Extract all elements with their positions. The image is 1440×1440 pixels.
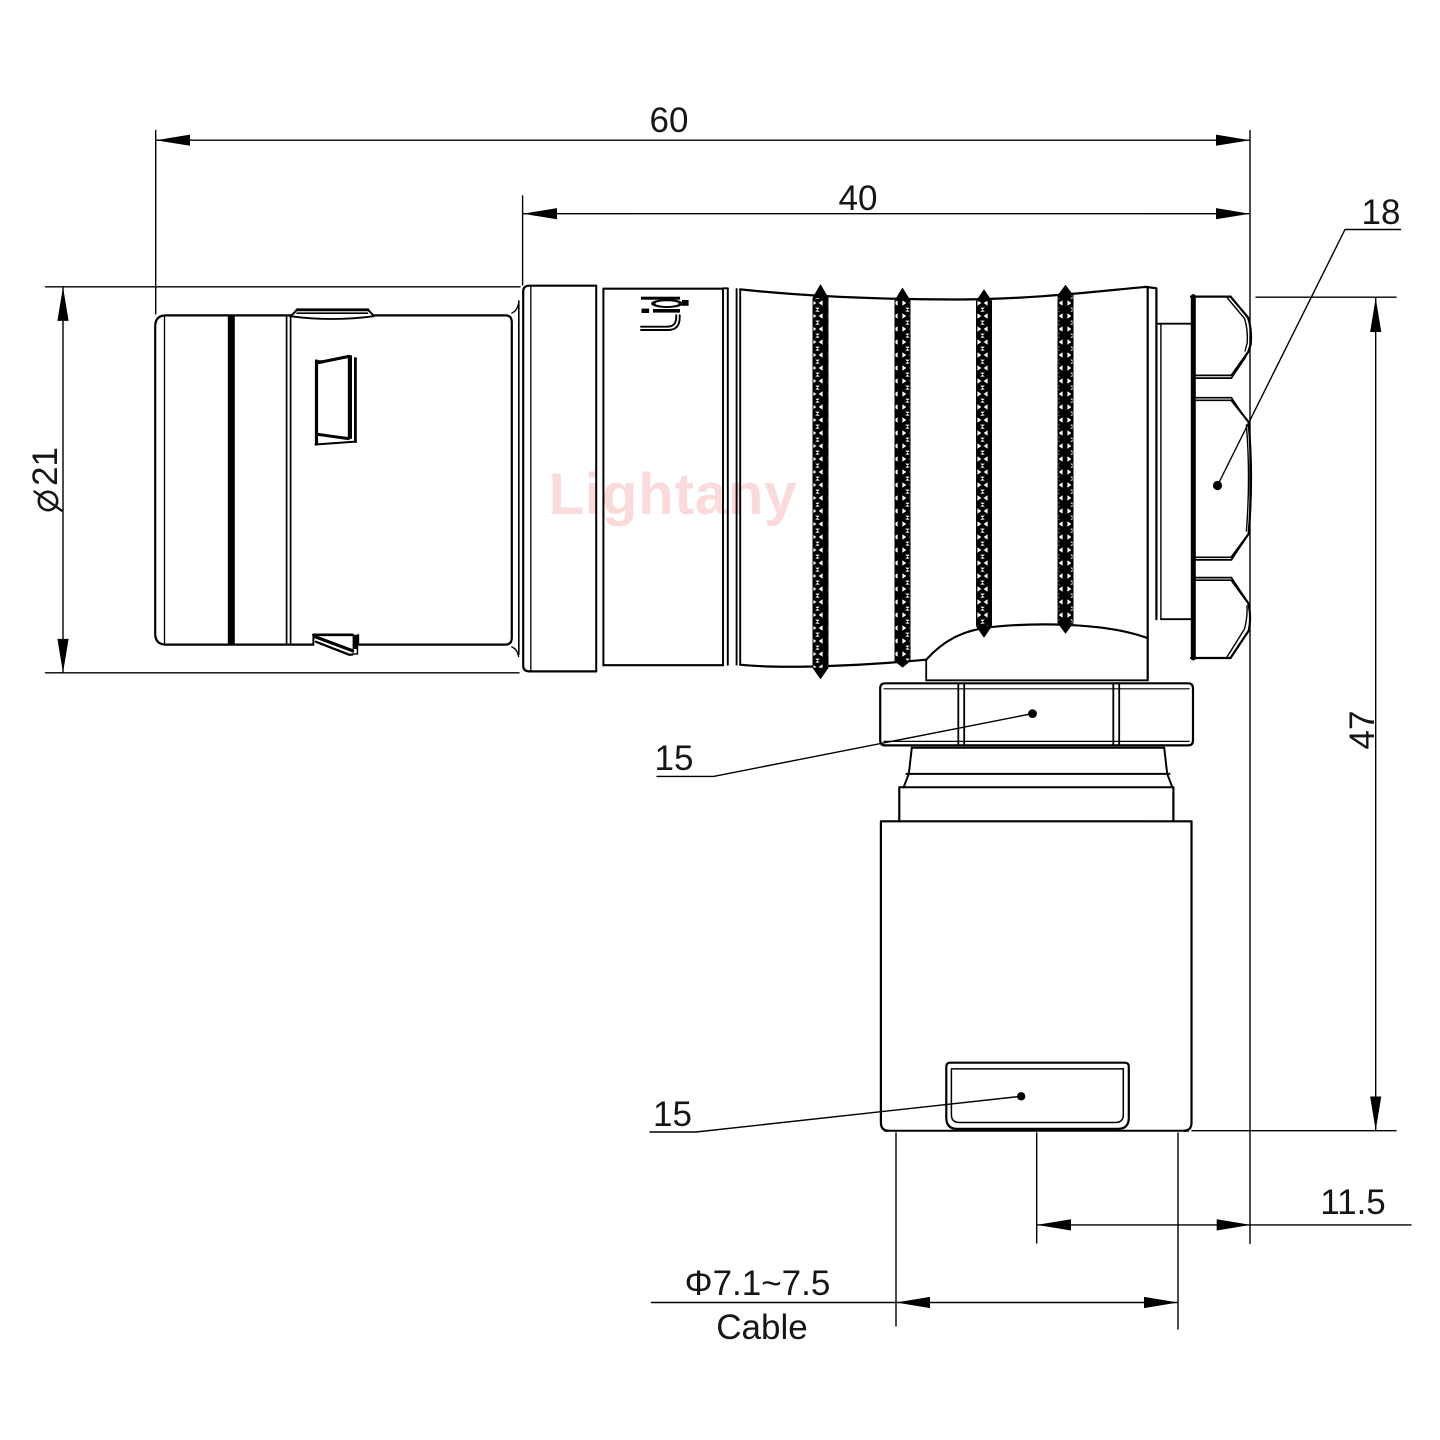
svg-text:47: 47 bbox=[1343, 711, 1382, 750]
svg-text:21: 21 bbox=[26, 447, 65, 486]
svg-text:11.5: 11.5 bbox=[1320, 1183, 1386, 1222]
svg-text:Lightany: Lightany bbox=[549, 462, 798, 527]
svg-text:15: 15 bbox=[653, 1095, 692, 1134]
svg-text:Cable: Cable bbox=[716, 1308, 807, 1347]
svg-text:60: 60 bbox=[650, 101, 689, 140]
svg-text:40: 40 bbox=[839, 179, 878, 218]
svg-text:15: 15 bbox=[655, 739, 694, 778]
svg-text:18: 18 bbox=[1362, 193, 1401, 232]
svg-text:Φ7.1~7.5: Φ7.1~7.5 bbox=[685, 1264, 831, 1303]
